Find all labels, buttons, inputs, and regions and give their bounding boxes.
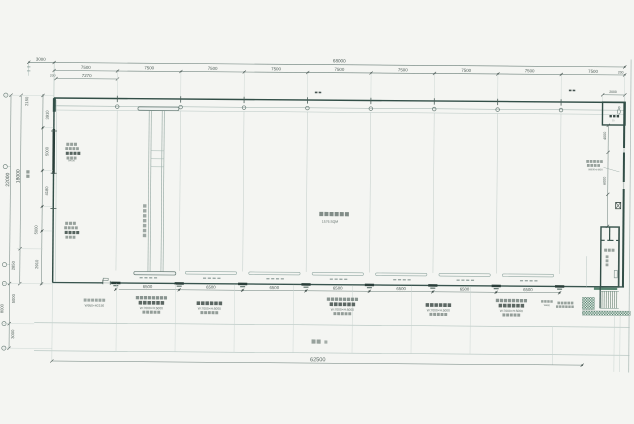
svg-text:3000: 3000 [36, 57, 46, 62]
svg-text:3910: 3910 [45, 110, 50, 120]
svg-text:6500: 6500 [460, 287, 470, 292]
svg-text:W:7000×H:5000: W:7000×H:5000 [198, 307, 221, 311]
svg-text:1576 SQM: 1576 SQM [322, 220, 338, 224]
svg-text:4000: 4000 [603, 132, 607, 140]
svg-text:7270: 7270 [82, 73, 92, 78]
svg-text:15: 15 [612, 119, 615, 122]
svg-text:6000: 6000 [603, 177, 607, 185]
svg-text:6500: 6500 [523, 287, 533, 292]
svg-text:7500: 7500 [335, 67, 345, 72]
svg-text:22000: 22000 [5, 172, 11, 186]
svg-text:2850: 2850 [11, 260, 16, 270]
svg-text:7500: 7500 [271, 66, 281, 71]
svg-text:7500: 7500 [398, 67, 408, 72]
svg-text:6500: 6500 [206, 285, 216, 290]
svg-text:6500: 6500 [396, 286, 406, 291]
svg-text:5000: 5000 [33, 225, 38, 235]
svg-text:6500: 6500 [333, 286, 343, 291]
svg-text:W:7000×H:5000: W:7000×H:5000 [331, 308, 354, 312]
svg-text:5000: 5000 [44, 146, 49, 156]
svg-text:5000: 5000 [11, 293, 16, 303]
svg-text:8000: 8000 [0, 303, 4, 313]
svg-text:7500: 7500 [81, 65, 91, 70]
svg-text:W:7000×H:5000: W:7000×H:5000 [427, 308, 450, 312]
svg-text:68000: 68000 [333, 58, 346, 63]
svg-text:7500: 7500 [588, 69, 598, 74]
svg-text:7500: 7500 [461, 68, 471, 73]
svg-text:4180: 4180 [44, 186, 49, 196]
svg-text:W:7000×H:5000: W:7000×H:5000 [140, 306, 163, 310]
svg-text:2000: 2000 [609, 90, 617, 94]
svg-text:2910: 2910 [34, 259, 39, 269]
svg-text:7500: 7500 [208, 66, 218, 71]
svg-text:W950×H2150: W950×H2150 [85, 304, 105, 308]
svg-text:W900×H900: W900×H900 [588, 167, 603, 171]
svg-text:W600: W600 [68, 158, 75, 162]
svg-text:200: 200 [50, 73, 56, 77]
svg-text:6500: 6500 [270, 285, 280, 290]
svg-text:6500: 6500 [143, 284, 153, 289]
svg-text:62500: 62500 [310, 357, 326, 363]
svg-text:7500: 7500 [144, 65, 154, 70]
svg-text:18000: 18000 [16, 169, 22, 183]
svg-text:W800: W800 [544, 304, 551, 307]
svg-text:3000: 3000 [10, 329, 15, 339]
svg-text:2150: 2150 [24, 96, 29, 106]
svg-text:7500: 7500 [525, 68, 535, 73]
svg-text:200: 200 [618, 70, 624, 74]
svg-text:W:7000×H:5000: W:7000×H:5000 [500, 309, 523, 313]
